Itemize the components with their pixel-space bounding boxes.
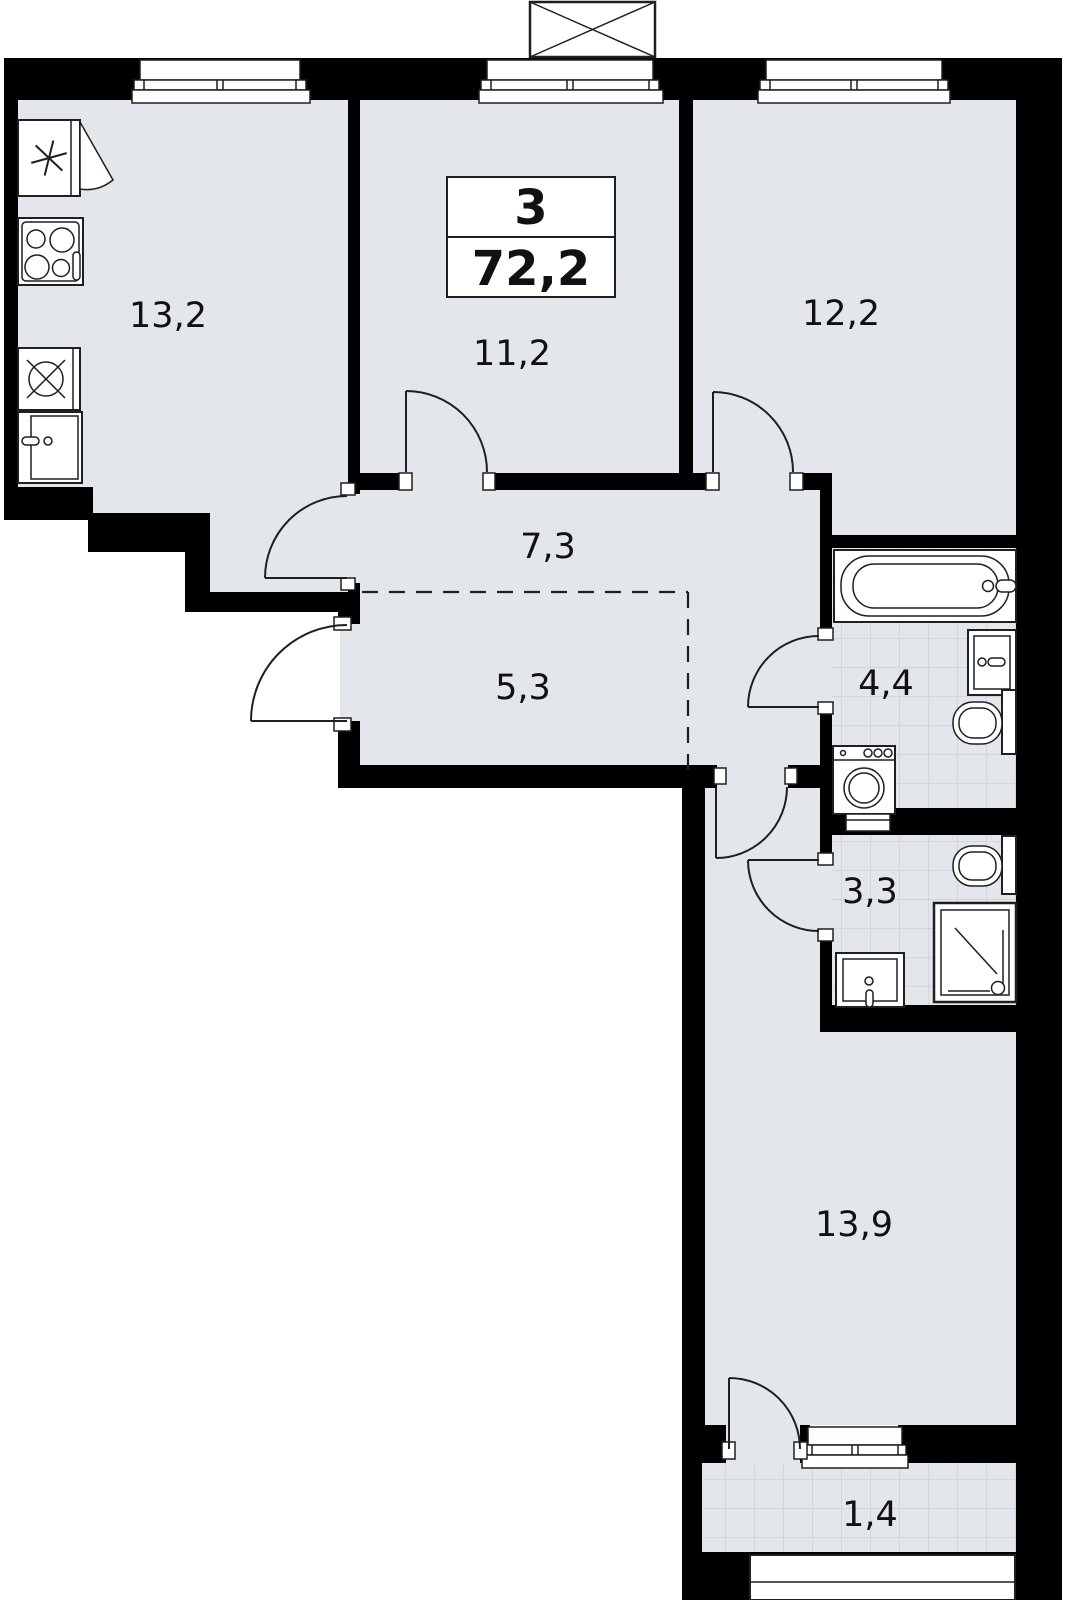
doorway-patch xyxy=(820,630,832,710)
wall-segment xyxy=(820,940,832,1010)
jamb xyxy=(341,483,355,495)
room-2-window-icon xyxy=(758,60,950,103)
wall-segment xyxy=(679,100,693,490)
wall-segment xyxy=(185,592,342,612)
wall-segment xyxy=(820,535,1016,548)
total-area-value: 72,2 xyxy=(472,241,590,297)
doorway-patch xyxy=(713,473,796,490)
wall-segment xyxy=(898,1425,1016,1463)
doorway-patch xyxy=(717,765,788,788)
jamb xyxy=(714,768,726,784)
wall-segment xyxy=(4,58,18,520)
jamb xyxy=(341,578,355,590)
doorway-patch xyxy=(348,490,360,585)
floor-plan-drawing: 3 72,2 13,2 11,2 12,2 7,3 5,3 4,4 3,3 13… xyxy=(0,0,1074,1600)
floor-plan: 3 72,2 13,2 11,2 12,2 7,3 5,3 4,4 3,3 13… xyxy=(0,0,1074,1600)
wall-segment xyxy=(682,765,705,1425)
kitchen-window-icon xyxy=(132,60,310,103)
kitchen-area-label: 13,2 xyxy=(129,296,207,336)
room-1-window-icon xyxy=(479,60,663,103)
wall-segment xyxy=(4,487,93,520)
kitchen-sink-icon xyxy=(18,348,80,410)
wall-segment xyxy=(1016,58,1062,1552)
shower-icon xyxy=(934,903,1016,1002)
shower-room-area-label: 3,3 xyxy=(842,872,898,912)
washbasin-icon xyxy=(836,953,904,1007)
jamb xyxy=(818,929,833,941)
jamb xyxy=(334,718,351,731)
balcony-railing xyxy=(750,1555,1015,1600)
wall-segment xyxy=(820,1005,1016,1032)
kitchen-cabinet-icon xyxy=(18,412,82,483)
bathroom-area-label: 4,4 xyxy=(858,664,914,704)
jamb xyxy=(399,473,412,490)
title-block: 3 72,2 xyxy=(447,177,615,297)
wall-segment xyxy=(489,473,679,490)
washbasin-icon xyxy=(968,630,1016,695)
stove-icon xyxy=(18,218,83,285)
jamb xyxy=(483,473,495,490)
jamb xyxy=(818,853,833,865)
jamb xyxy=(785,768,797,784)
doorway-patch xyxy=(340,624,360,721)
ventilation-shaft-icon xyxy=(530,2,655,57)
balcony-window-icon xyxy=(802,1427,908,1468)
doorway-patch xyxy=(820,857,832,940)
hallway-area-label: 7,3 xyxy=(520,527,576,567)
wall-segment xyxy=(682,1425,726,1463)
wall-segment xyxy=(348,100,360,494)
bathtub-icon xyxy=(834,550,1016,622)
hallway-alcove-area-label: 5,3 xyxy=(495,668,551,708)
doorway-patch xyxy=(726,1425,800,1463)
jamb xyxy=(790,473,803,490)
wall-segment xyxy=(338,765,690,788)
jamb xyxy=(818,702,833,714)
balcony-area-label: 1,4 xyxy=(842,1495,898,1535)
jamb xyxy=(334,617,351,630)
room-2-area-label: 12,2 xyxy=(802,294,880,334)
wall-segment xyxy=(820,548,832,630)
hallway-floor xyxy=(352,490,820,765)
jamb xyxy=(706,473,719,490)
jamb xyxy=(818,628,833,640)
doorway-patch xyxy=(406,473,489,490)
rooms-count-value: 3 xyxy=(514,180,547,236)
wall-segment xyxy=(88,513,210,552)
room-3-area-label: 13,9 xyxy=(815,1205,893,1245)
room-1-area-label: 11,2 xyxy=(473,334,551,374)
